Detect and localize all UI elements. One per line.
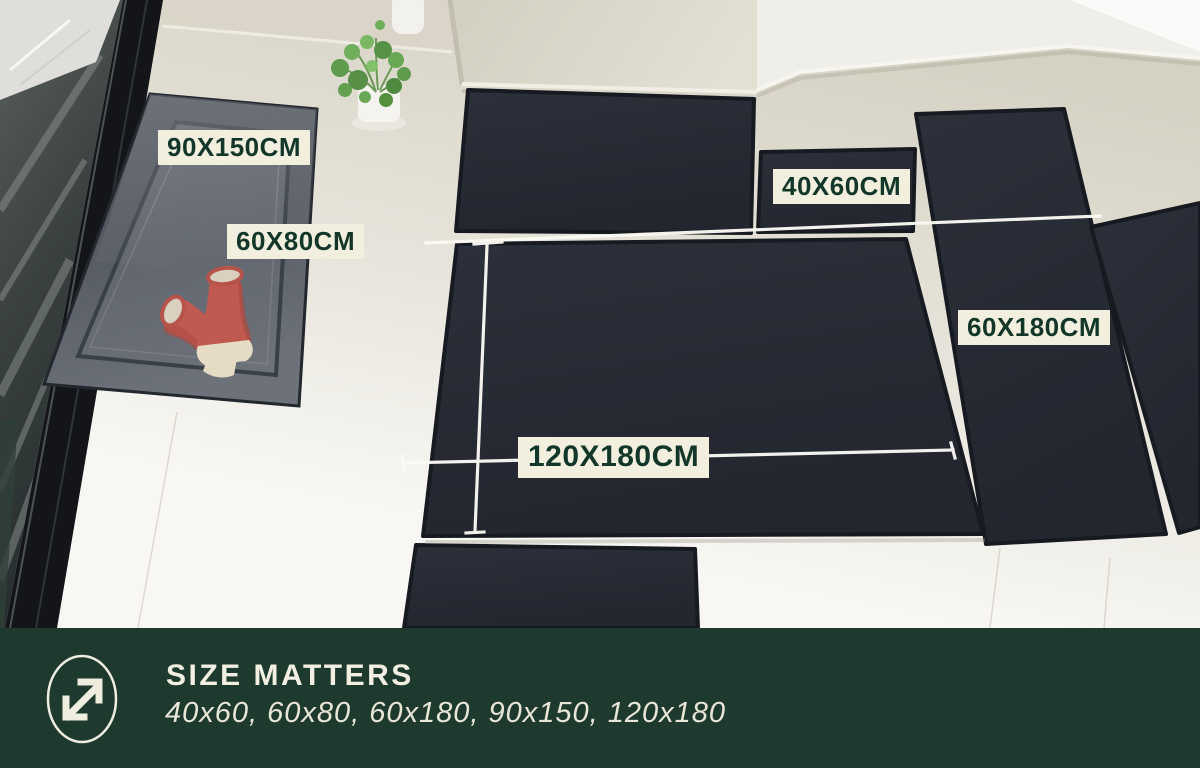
size-label-90x150: 90X150CM <box>158 130 310 165</box>
photo-scene: 90X150CM 60X80CM 40X60CM 60X180CM 120X18… <box>0 0 1200 628</box>
size-label-40x60: 40X60CM <box>773 169 910 204</box>
banner-title: SIZE MATTERS <box>166 661 414 691</box>
size-label-60x180: 60X180CM <box>958 310 1110 345</box>
mat-floor-shadow <box>425 540 985 542</box>
banner-subtitle: 40x60, 60x80, 60x180, 90x150, 120x180 <box>165 699 726 728</box>
info-banner: SIZE MATTERS 40x60, 60x80, 60x180, 90x15… <box>0 628 1200 768</box>
measure-vertical-tick-bottom <box>466 532 484 533</box>
size-label-120x180: 120X180CM <box>518 437 709 478</box>
resize-diagonal-icon <box>45 654 121 746</box>
measure-horizontal-tick-left <box>402 456 404 471</box>
mat-bottom <box>404 545 698 628</box>
product-image: 90X150CM 60X80CM 40X60CM 60X180CM 120X18… <box>0 0 1200 768</box>
mat-120x180 <box>423 239 983 536</box>
mat-upper <box>456 90 754 233</box>
second-pot <box>392 0 424 34</box>
wall-pillar <box>448 0 757 92</box>
diagonal-arrow <box>66 682 99 717</box>
measure-vertical-tick-top <box>474 242 502 244</box>
size-label-60x80: 60X80CM <box>227 224 364 259</box>
